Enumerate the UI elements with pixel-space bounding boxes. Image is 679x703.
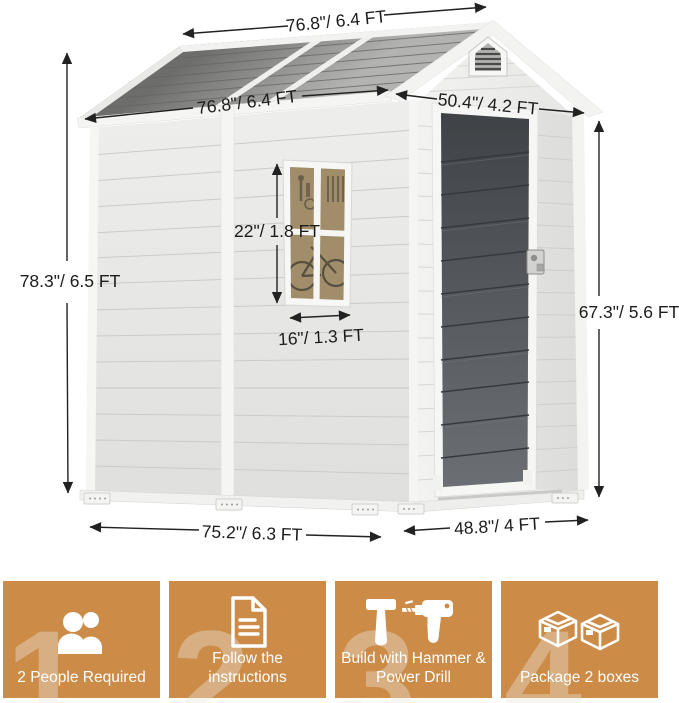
door-bracket	[523, 470, 532, 485]
dim-front-base-width: 48.8"/ 4 FT	[404, 513, 588, 538]
assembly-features: 1 2 People Required 2 Follow the instruc…	[3, 581, 658, 698]
product-dimension-sheet: 76.8"/ 6.4 FT 76.8"/ 6.4 FT 50.4"/ 4.2 F…	[0, 0, 679, 703]
wall-beam	[221, 105, 234, 499]
feature-label: Package 2 boxes	[520, 669, 639, 687]
power-drill-icon	[402, 600, 453, 643]
instructions-document-icon	[227, 596, 269, 648]
hammer-and-drill-icon	[364, 596, 464, 648]
shed-dimension-diagram: 76.8"/ 6.4 FT 76.8"/ 6.4 FT 50.4"/ 4.2 F…	[0, 0, 679, 578]
two-people-icon	[55, 609, 109, 654]
svg-text:67.3"/ 5.6 FT: 67.3"/ 5.6 FT	[579, 302, 679, 322]
hammer-icon	[366, 599, 396, 646]
feature-follow-instructions: 2 Follow the instructions	[169, 581, 326, 698]
svg-text:22"/ 1.8 FT: 22"/ 1.8 FT	[234, 221, 320, 241]
dim-right-height: 67.3"/ 5.6 FT	[579, 121, 679, 497]
svg-text:78.3"/ 6.5 FT: 78.3"/ 6.5 FT	[20, 271, 121, 291]
feature-people-required: 1 2 People Required	[3, 581, 160, 698]
svg-text:75.2"/ 6.3 FT: 75.2"/ 6.3 FT	[201, 521, 303, 545]
package-boxes-icon	[537, 607, 623, 655]
dim-side-base-length: 75.2"/ 6.3 FT	[90, 521, 381, 545]
feature-label: 2 People Required	[17, 669, 145, 687]
feature-hammer-drill: 3 Build with Ha	[335, 581, 492, 698]
door-handle	[527, 250, 544, 274]
feature-package-boxes: 4 Package 2 boxes	[501, 581, 658, 698]
door-bracket	[433, 476, 442, 491]
shed-side-wall	[86, 100, 419, 504]
feature-label: Follow the instructions	[172, 650, 323, 687]
svg-text:48.8"/ 4 FT: 48.8"/ 4 FT	[453, 513, 540, 538]
feature-label: Build with Hammer & Power Drill	[338, 650, 489, 687]
corner-trim	[409, 100, 419, 504]
